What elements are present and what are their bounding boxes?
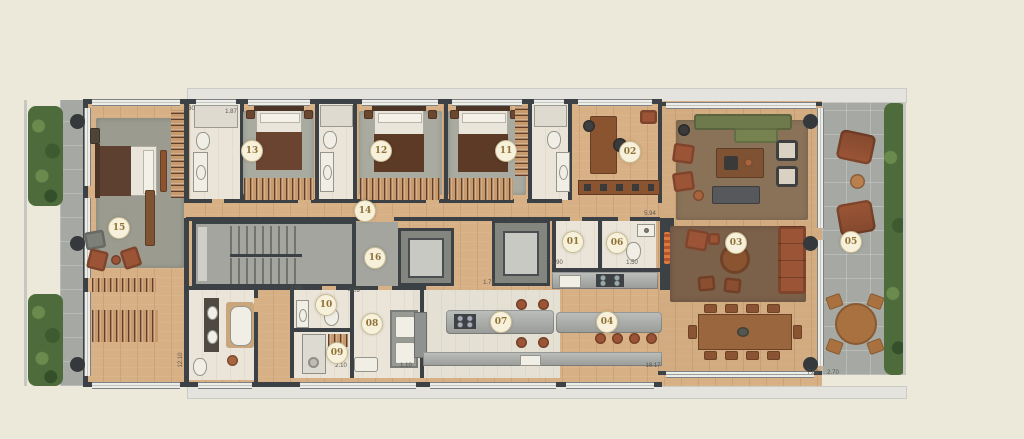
dimension-label: 12.10 — [178, 352, 184, 367]
dimension-label: 1.10 — [400, 363, 412, 369]
dining-chair — [746, 351, 759, 360]
wall-09-10-divider — [292, 328, 352, 332]
dimension-label: 1.50 — [626, 260, 638, 266]
cooktop — [596, 274, 624, 287]
kitchen-sink — [559, 275, 581, 288]
window-left-1 — [84, 108, 91, 186]
door-room06 — [618, 217, 630, 221]
master-closet-rack-1 — [92, 278, 156, 292]
room-marker-07: 07 — [490, 311, 512, 333]
toilet-11 — [547, 131, 561, 149]
pillows — [378, 113, 422, 123]
island-stool — [538, 299, 549, 310]
room-marker-08: 08 — [361, 313, 383, 335]
toilet-13 — [196, 132, 210, 150]
room-marker-12: 12 — [370, 140, 392, 162]
office-cabinet — [640, 110, 657, 124]
island-stool — [516, 337, 527, 348]
pillows — [462, 113, 506, 123]
terrace-fence — [903, 103, 906, 375]
office-credenza — [578, 180, 660, 195]
bathtub — [226, 302, 254, 348]
kitchen-back-counter — [552, 272, 658, 289]
dining-table — [698, 314, 792, 350]
armchair-rust-1 — [672, 143, 695, 165]
dimension-label: 2.90 — [290, 286, 302, 292]
room-marker-01: 01 — [562, 231, 584, 253]
dining-chair — [725, 304, 738, 313]
slipper-chair-2 — [723, 277, 741, 294]
master-headboard — [95, 144, 100, 198]
stair-treads-lower — [230, 258, 302, 284]
lavabo-toilet — [626, 242, 641, 261]
lounge-chair — [684, 228, 709, 252]
closet-rack-12 — [360, 178, 440, 200]
coffee-table-decor — [724, 156, 738, 170]
door-bath13 — [212, 199, 224, 203]
master-armchair-gray — [84, 229, 107, 250]
dining-chair — [725, 351, 738, 360]
cabinet-inset — [395, 342, 415, 364]
window-left-3 — [84, 292, 91, 376]
faucet — [644, 228, 649, 233]
coffee-table-bowl — [744, 158, 753, 167]
room-marker-16: 16 — [364, 247, 386, 269]
credenza-items — [584, 184, 654, 191]
wall-b12-left — [353, 99, 357, 200]
sofa-rust — [778, 226, 806, 294]
living-pouf — [693, 190, 704, 201]
sink — [559, 165, 568, 180]
headboard — [254, 106, 304, 111]
armchair-cream-1 — [776, 140, 798, 161]
cabinet-inset — [395, 316, 415, 338]
terrace-side-table — [850, 174, 865, 189]
window-master-bottom — [92, 382, 180, 389]
master-bench — [160, 150, 167, 192]
door-master — [184, 203, 189, 218]
dining-chair-end — [688, 325, 697, 339]
dimension-label: 7.80 — [807, 370, 819, 376]
dining-chair — [746, 304, 759, 313]
column — [803, 114, 818, 129]
daybed-gray — [712, 186, 760, 204]
door-room01 — [570, 217, 582, 221]
nightstand — [364, 110, 373, 119]
window-bed11 — [452, 99, 522, 106]
dimension-label: 1.30 — [183, 106, 195, 112]
stair-side-strip — [198, 227, 207, 281]
wall-service-left — [290, 290, 294, 378]
room-marker-04: 04 — [596, 311, 618, 333]
master-closet-rack-2 — [92, 310, 158, 342]
window-kitchen-bottom — [430, 382, 556, 389]
window-bed12 — [362, 99, 438, 106]
sink — [196, 165, 206, 180]
room-marker-13: 13 — [241, 140, 263, 162]
dimension-label: 18.17 — [645, 363, 660, 369]
window-living-top — [666, 102, 816, 109]
sink — [299, 309, 307, 322]
master-pouf — [111, 255, 121, 265]
kitchen-bottom-counter — [423, 352, 662, 366]
nightstand — [450, 110, 459, 119]
bar-stool — [646, 333, 657, 344]
column — [70, 236, 85, 251]
lavabo-sink — [637, 224, 655, 237]
room-marker-11: 11 — [495, 140, 517, 162]
master-nightstand — [90, 128, 100, 144]
dimension-label: 5.94 — [644, 211, 656, 217]
closet-rack-11 — [449, 178, 513, 200]
sofa-green-chaise — [734, 128, 778, 143]
ottoman — [708, 233, 720, 245]
dining-chair — [704, 351, 717, 360]
vanity-11 — [556, 152, 570, 192]
door-mbath — [254, 298, 258, 312]
master-bed-pillows — [143, 150, 154, 194]
wall-b12-bath — [315, 99, 319, 200]
master-toilet — [193, 358, 207, 376]
nightstand — [428, 110, 437, 119]
dining-chair — [704, 304, 717, 313]
master-closet-rack-right — [171, 110, 184, 198]
wall-01-06-divider — [598, 218, 602, 270]
headboard — [456, 106, 510, 111]
stair-treads-upper — [230, 226, 302, 254]
elevator-1-car — [408, 238, 444, 278]
washer-door — [308, 357, 319, 368]
column — [803, 236, 818, 251]
office-side-chair — [583, 120, 595, 132]
room-marker-14: 14 — [354, 200, 376, 222]
master-shelf — [145, 190, 155, 246]
window-master-top — [92, 99, 180, 106]
door-room10 — [322, 286, 336, 290]
counter-sink — [520, 355, 541, 366]
column — [70, 357, 85, 372]
sink — [207, 306, 218, 320]
vanity-12 — [320, 152, 334, 192]
door-bed11 — [514, 199, 527, 203]
bar-stool — [612, 333, 623, 344]
left-planter-bottom — [28, 294, 63, 386]
window-bar-bottom — [566, 382, 654, 389]
toilet-12 — [323, 131, 337, 149]
window-terrace-1 — [817, 108, 824, 228]
stair-landing-divider — [230, 254, 302, 257]
dimension-label: 1.90 — [551, 260, 563, 266]
left-terrace-fence — [24, 100, 27, 386]
island-stool — [516, 299, 527, 310]
dining-chair-end — [793, 325, 802, 339]
bath-stool — [227, 355, 238, 366]
vanity-13 — [193, 152, 208, 192]
wardrobe-11 — [515, 106, 528, 176]
terrace-round-table — [835, 303, 877, 345]
window-living-bottom — [666, 371, 814, 378]
dining-chair — [767, 304, 780, 313]
window-service-bottom — [300, 382, 416, 389]
dimension-label: 1.75 — [483, 280, 495, 286]
closet-rack-13 — [244, 178, 314, 200]
wall-master-divider — [184, 99, 189, 387]
island-cooktop — [454, 314, 476, 329]
wall-corridor-bottom — [186, 217, 660, 221]
dining-chair — [767, 351, 780, 360]
dimension-label: 1.87 — [225, 109, 237, 115]
room-marker-03: 03 — [725, 232, 747, 254]
dimension-label: 4.09 — [348, 288, 360, 294]
window-office — [578, 99, 652, 106]
room-marker-05: 05 — [840, 231, 862, 253]
window-bed13 — [248, 99, 310, 106]
nightstand — [246, 110, 255, 119]
left-planter-top — [28, 106, 63, 206]
elevator-2-car — [503, 231, 539, 276]
sink — [207, 330, 218, 344]
headboard — [372, 106, 426, 111]
shower-11 — [534, 105, 567, 127]
island-stool — [538, 337, 549, 348]
room-marker-02: 02 — [619, 141, 641, 163]
floor-plan-canvas: 01020304050607080910111213141516 1.301.8… — [0, 0, 1024, 439]
sink — [323, 165, 332, 180]
bar-stool — [595, 333, 606, 344]
room-marker-06: 06 — [606, 232, 628, 254]
door-room08 — [378, 286, 392, 290]
coffee-table — [716, 148, 764, 178]
armchair-rust-2 — [672, 171, 695, 193]
slipper-chair-1 — [697, 275, 715, 291]
washer — [302, 334, 326, 374]
side-table-black — [678, 124, 690, 136]
centerpiece — [737, 327, 749, 337]
vanity-10 — [296, 300, 309, 328]
master-bed-throw — [99, 146, 131, 196]
nightstand — [304, 110, 313, 119]
room-marker-09: 09 — [326, 342, 348, 364]
pillows — [260, 113, 300, 123]
window-mbath-bottom — [198, 382, 252, 389]
column — [70, 114, 85, 129]
window-terrace-2 — [817, 240, 824, 366]
wall-b11-bath — [528, 99, 532, 200]
master-bed — [99, 146, 157, 196]
laundry-tub — [354, 357, 378, 372]
master-vanity — [204, 298, 219, 352]
bathtub-basin — [230, 306, 252, 346]
shower-12 — [320, 105, 353, 127]
bed-13 — [256, 110, 302, 170]
bar-stool — [629, 333, 640, 344]
dimension-label: 2.70 — [827, 370, 839, 376]
room-marker-15: 15 — [108, 217, 130, 239]
armchair-cream-2 — [776, 166, 798, 187]
room-marker-10: 10 — [315, 294, 337, 316]
